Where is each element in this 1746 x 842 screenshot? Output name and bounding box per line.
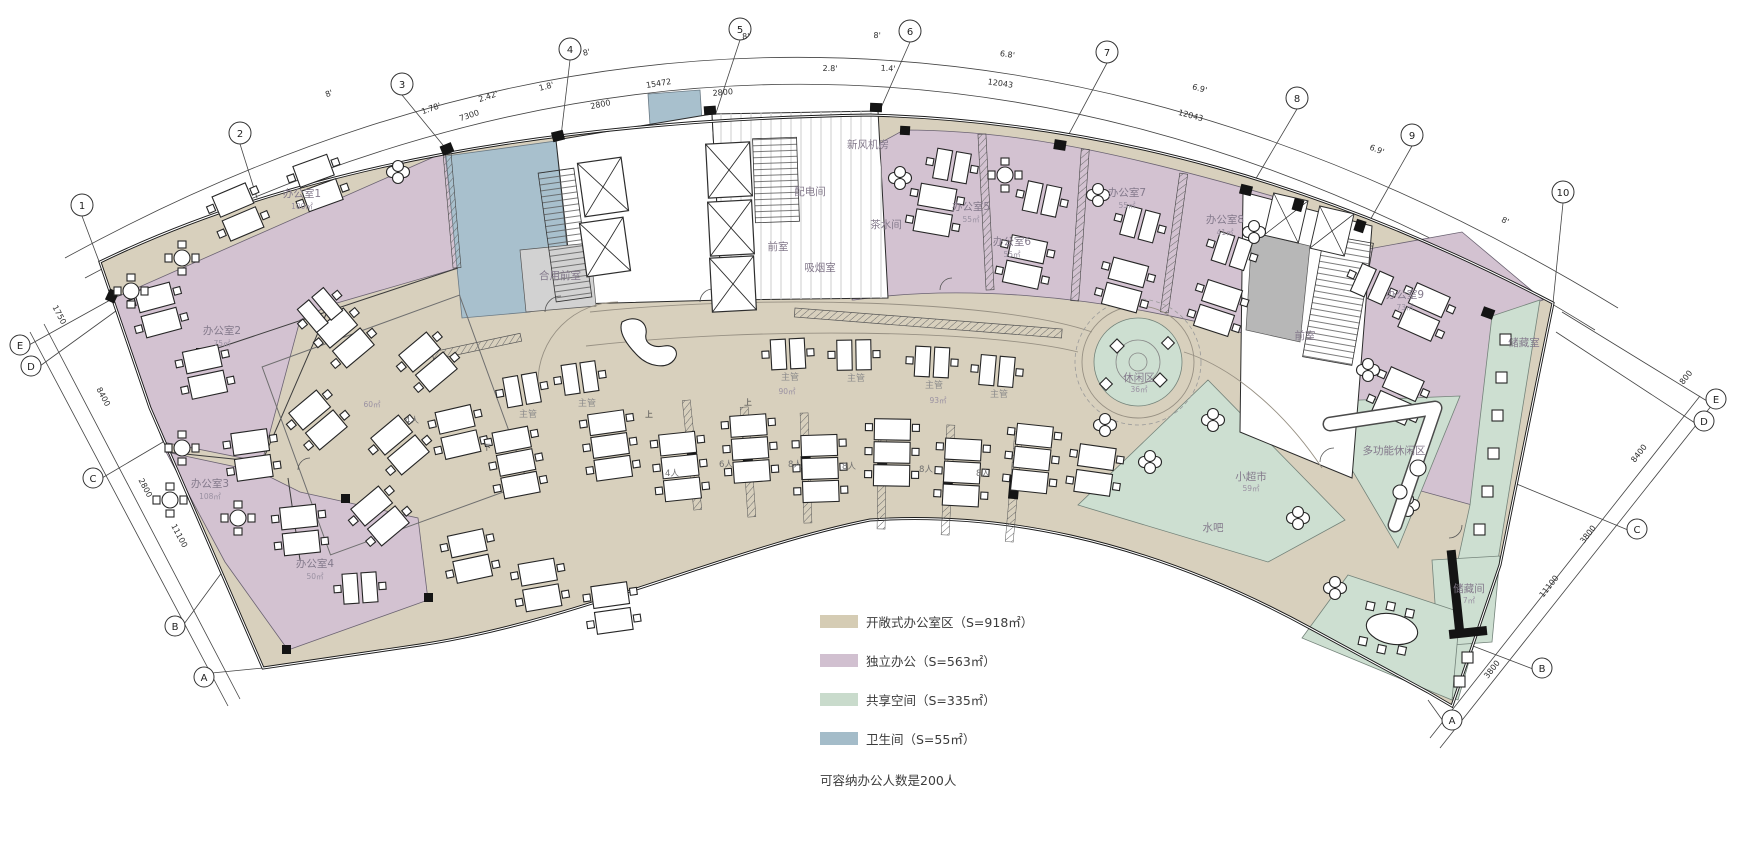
svg-text:10: 10 — [1557, 188, 1570, 199]
room-label-tea-room: 茶水间 — [870, 218, 902, 231]
room-label-office3: 办公室3 — [191, 477, 229, 490]
svg-text:8: 8 — [1294, 94, 1300, 105]
room-label-leisure-area: 休闲区 — [1123, 371, 1155, 384]
room-label-storage-2: 储藏间 — [1453, 582, 1485, 595]
room-area-office5: 55㎡ — [962, 215, 980, 224]
room-area-office2: 75㎡ — [213, 339, 231, 348]
legend-row-restroom: 卫生间（S=55㎡） — [820, 731, 1180, 745]
dim-label: 7300 — [458, 108, 480, 123]
dim-label: 1750 — [50, 304, 68, 326]
room-label-mini-market: 小超市 — [1235, 470, 1267, 483]
axis-bubble-right-B: B — [1532, 658, 1552, 678]
dim-label: 6.8' — [999, 49, 1015, 60]
axis-bubble-left-E: E — [10, 335, 30, 355]
room-label-office5: 办公室5 — [952, 200, 990, 213]
room-area-office4: 50㎡ — [306, 572, 324, 581]
dim-label: 800 — [1678, 369, 1695, 387]
axis-bubble-right-C: C — [1627, 519, 1647, 539]
desk-count-label: 8人 — [976, 469, 990, 479]
svg-text:D: D — [1700, 417, 1708, 428]
dim-label: 15472 — [645, 77, 672, 90]
dim-label: 11100 — [1538, 574, 1561, 600]
dim-label: 8400 — [1629, 443, 1649, 465]
room-label-front-room-left: 前室 — [768, 240, 789, 253]
axis-bubble-top-4: 4 — [559, 38, 581, 60]
axis-bubble-left-A: A — [194, 667, 214, 687]
axis-bubble-top-8: 8 — [1286, 87, 1308, 109]
svg-text:E: E — [1713, 395, 1719, 406]
dim-label: 2.8' — [823, 64, 838, 73]
axis-bubble-right-A: A — [1442, 710, 1462, 730]
svg-text:6: 6 — [907, 27, 913, 38]
dim-label: 2.42' — [477, 89, 499, 104]
axis-bubble-right-D: D — [1694, 411, 1714, 431]
axis-bubble-top-10: 10 — [1552, 181, 1574, 203]
dim-label: 8' — [742, 32, 750, 41]
axis-bubble-top-2: 2 — [229, 122, 251, 144]
room-area-office1: 100㎡ — [291, 202, 313, 211]
dim-label: 12043 — [987, 77, 1013, 89]
room-label-office8: 办公室8 — [1206, 213, 1244, 226]
dim-label: 8' — [873, 31, 881, 40]
room-area-office6: 55㎡ — [1003, 250, 1021, 259]
dim-label: 12043 — [1177, 108, 1204, 123]
room-area-mini-market: 59㎡ — [1242, 484, 1260, 493]
open-area-size: 60㎡ — [363, 400, 381, 409]
dim-label: 2800 — [590, 98, 612, 111]
legend-label-private-office: 独立办公（S=563㎡） — [866, 651, 996, 670]
svg-text:C: C — [90, 474, 97, 485]
legend-label-shared-space: 共享空间（S=335㎡） — [866, 690, 996, 709]
dim-label: 8400 — [94, 386, 112, 408]
dim-label: 6.9' — [1191, 82, 1208, 95]
dim-label: 2800 — [136, 477, 154, 499]
svg-text:B: B — [1539, 664, 1546, 675]
room-area-office7: 55㎡ — [1118, 201, 1136, 210]
dim-label: 8' — [324, 88, 334, 99]
svg-text:D: D — [27, 362, 35, 373]
svg-text:A: A — [201, 673, 208, 684]
desk-count-label: 4人 — [405, 416, 419, 426]
dim-label: 2800 — [712, 87, 733, 98]
room-label-office4: 办公室4 — [296, 557, 334, 570]
dim-label: 8' — [582, 47, 591, 57]
room-area-leisure-area: 36㎡ — [1130, 385, 1148, 394]
svg-text:E: E — [17, 341, 23, 352]
room-label-multifunction-lounge: 多功能休闲区 — [1363, 444, 1426, 457]
legend-swatch-open-office — [820, 615, 858, 628]
room-label-office9: 办公室9 — [1386, 288, 1424, 301]
legend-swatch-shared-space — [820, 693, 858, 706]
legend-row-shared-space: 共享空间（S=335㎡） — [820, 692, 1180, 706]
svg-text:C: C — [1634, 525, 1641, 536]
dim-label: 3800 — [1578, 524, 1598, 546]
stair-down-label: 下 — [483, 443, 491, 452]
room-label-office6: 办公室6 — [993, 235, 1031, 248]
dim-label: 1.4' — [880, 64, 895, 74]
supervisor-label: 主管 — [990, 388, 1008, 400]
axis-bubble-left-D: D — [21, 356, 41, 376]
open-area-size: 93㎡ — [929, 396, 947, 405]
room-area-office3: 108㎡ — [199, 492, 221, 501]
svg-text:A: A — [1449, 716, 1456, 727]
legend-row-open-office: 开敞式办公室区（S=918㎡） — [820, 614, 1180, 628]
room-area-storage-2: 7㎡ — [1463, 596, 1476, 605]
svg-text:1: 1 — [79, 201, 85, 212]
room-label-water-bar: 水吧 — [1203, 522, 1225, 534]
axis-bubble-top-1: 1 — [71, 194, 93, 216]
room-label-office2: 办公室2 — [203, 324, 241, 337]
axis-bubble-top-7: 7 — [1096, 41, 1118, 63]
svg-text:2: 2 — [237, 129, 243, 140]
dim-label: 1.78' — [420, 101, 442, 116]
axis-bubble-left-C: C — [83, 468, 103, 488]
room-label-fresh-air-room: 新风机房 — [847, 138, 889, 151]
desk-count-label: 6人 — [719, 460, 733, 470]
floor-plan-page: 办公室1 100㎡ 办公室2 75㎡ 办公室3 108㎡ 办公室4 50㎡ 办公… — [0, 0, 1746, 842]
room-label-power-room: 配电间 — [794, 185, 826, 198]
dim-label: 8' — [1500, 215, 1511, 226]
stair-up-label: 上 — [744, 398, 752, 407]
svg-text:9: 9 — [1409, 131, 1415, 142]
room-label-office7: 办公室7 — [1108, 186, 1146, 199]
supervisor-label: 主管 — [519, 408, 537, 420]
axis-bubble-left-B: B — [165, 616, 185, 636]
legend-swatch-private-office — [820, 654, 858, 667]
desk-count-label: 8人 — [842, 462, 856, 472]
svg-text:4: 4 — [567, 45, 573, 56]
axis-bubble-top-9: 9 — [1401, 124, 1423, 146]
supervisor-label: 主管 — [847, 372, 865, 384]
legend-label-restroom: 卫生间（S=55㎡） — [866, 729, 975, 748]
room-area-office9: 73㎡ — [1396, 303, 1414, 312]
svg-text:3: 3 — [399, 80, 405, 91]
room-label-smoking-room: 吸烟室 — [804, 261, 836, 274]
room-label-office1: 办公室1 — [283, 187, 321, 200]
room-label-storage-room: 储藏室 — [1508, 336, 1540, 349]
dim-label: 6.9' — [1368, 143, 1385, 157]
axis-bubble-right-E: E — [1706, 389, 1726, 409]
open-area-size: 90㎡ — [778, 387, 796, 396]
axis-bubble-top-3: 3 — [391, 73, 413, 95]
legend: 开敞式办公室区（S=918㎡） 独立办公（S=563㎡） 共享空间（S=335㎡… — [820, 614, 1180, 789]
desk-count-label: 4人 — [665, 469, 679, 479]
axis-bubble-top-6: 6 — [899, 20, 921, 42]
desk-count-label: 8人 — [788, 460, 802, 470]
legend-capacity-note: 可容纳办公人数是200人 — [820, 770, 1180, 789]
legend-swatch-restroom — [820, 732, 858, 745]
legend-row-private-office: 独立办公（S=563㎡） — [820, 653, 1180, 667]
room-area-office8: 41㎡ — [1216, 228, 1234, 237]
supervisor-label: 主管 — [578, 397, 596, 409]
legend-label-open-office: 开敞式办公室区（S=918㎡） — [866, 612, 1033, 631]
room-label-front-room-right: 前室 — [1295, 329, 1316, 342]
supervisor-label: 主管 — [925, 379, 943, 391]
supervisor-label: 主管 — [781, 371, 799, 383]
dim-label: 3800 — [1482, 659, 1502, 681]
room-label-shared-front-room: 合用前室 — [539, 269, 581, 282]
desk-count-label: 8人 — [919, 465, 933, 475]
dim-label: 11100 — [169, 522, 189, 549]
stair-up-label: 上 — [645, 410, 653, 419]
svg-text:B: B — [172, 622, 179, 633]
svg-text:7: 7 — [1104, 48, 1110, 59]
